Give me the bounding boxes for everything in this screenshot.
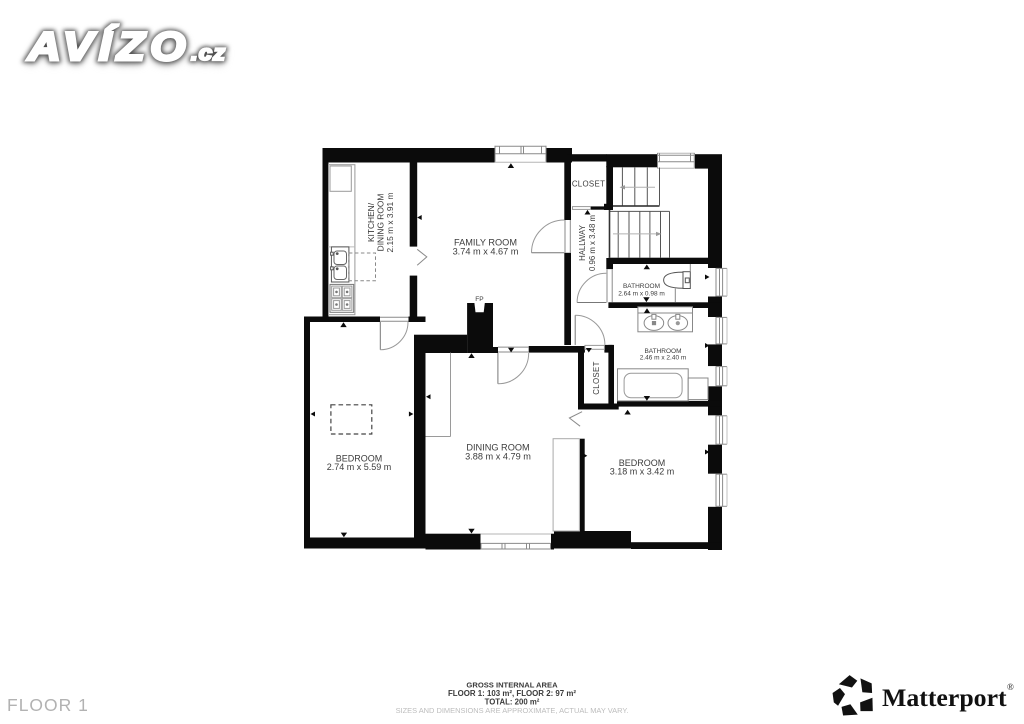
svg-text:Matterport: Matterport (882, 683, 1007, 712)
svg-text:0.96 m x 3.48 m: 0.96 m x 3.48 m (588, 215, 597, 271)
svg-text:CLOSET: CLOSET (572, 180, 605, 189)
svg-text:SIZES AND DIMENSIONS ARE APPRO: SIZES AND DIMENSIONS ARE APPROXIMATE, AC… (396, 706, 629, 715)
svg-text:BATHROOM: BATHROOM (623, 283, 660, 290)
svg-text:KITCHEN/: KITCHEN/ (366, 202, 376, 242)
svg-text:CLOSET: CLOSET (592, 361, 601, 394)
svg-text:2.74 m x 5.59 m: 2.74 m x 5.59 m (327, 462, 392, 472)
svg-text:FLOOR 1: 103 m², FLOOR 2: 97 m: FLOOR 1: 103 m², FLOOR 2: 97 m² (448, 689, 576, 698)
svg-text:2.15 m x 3.91 m: 2.15 m x 3.91 m (385, 192, 395, 252)
svg-text:DINING ROOM: DINING ROOM (376, 194, 386, 252)
svg-text:HALLWAY: HALLWAY (578, 224, 587, 261)
svg-text:®: ® (1007, 682, 1014, 692)
svg-text:2.46 m x 2.40 m: 2.46 m x 2.40 m (640, 355, 687, 362)
svg-text:FP: FP (475, 296, 484, 303)
svg-text:2.64 m x 0.98 m: 2.64 m x 0.98 m (618, 290, 665, 297)
svg-text:3.88 m x 4.79 m: 3.88 m x 4.79 m (465, 452, 531, 462)
svg-text:3.74 m x 4.67 m: 3.74 m x 4.67 m (453, 247, 519, 257)
svg-text:3.18 m x 3.42 m: 3.18 m x 3.42 m (610, 467, 675, 477)
